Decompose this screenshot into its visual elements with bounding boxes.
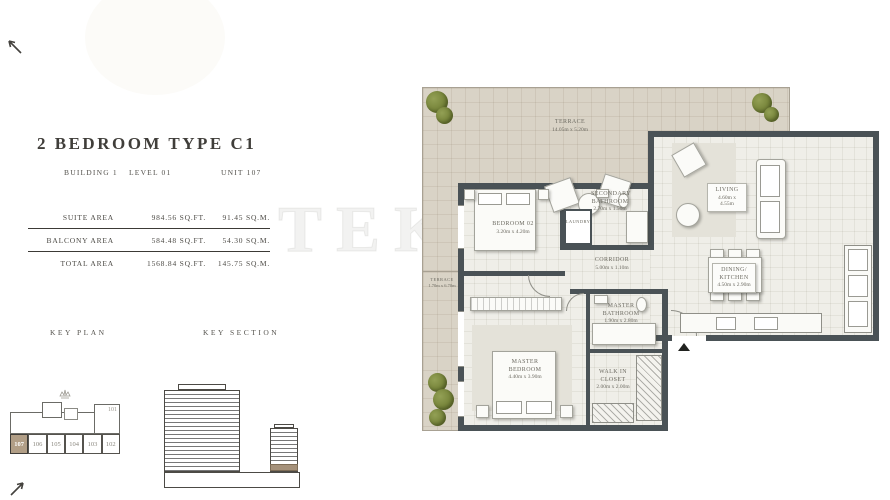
wardrobe-icon [592,403,634,423]
room-label-living: LIVING 4.60m x 4.55m [707,183,747,212]
key-plan-core [42,402,62,418]
tree-icon [436,107,453,124]
plan-background-patch [792,85,884,129]
balcony-area-sqm: 54.30 SQ.M. [206,236,270,245]
pillow-icon [478,193,502,205]
room-dims: 4.50m x 2.90m [717,282,751,289]
wall [648,131,654,189]
room-name: SECONDARY BATHROOM [591,191,629,206]
unit-101-label: 101 [108,407,117,413]
room-dims: 14.05m x 5.20m [552,127,588,134]
oven-icon [848,275,868,297]
wall [560,245,654,250]
room-name: WALK IN CLOSET [595,369,631,384]
kitchen-counter [680,313,822,333]
room-dims: 2.00m x 2.00m [595,384,631,391]
hob-icon [716,317,736,330]
room-dims: 4.60m x 4.55m [712,195,742,209]
balcony-area-label: BALCONY AREA [28,236,114,245]
room-name: MASTER BEDROOM [504,359,546,374]
wall [586,291,590,425]
tree-icon [429,409,446,426]
room-name: BEDROOM 02 [489,221,537,229]
key-plan-unit-106: 106 [28,434,46,454]
side-table-icon [676,203,700,227]
dresser-icon [470,297,562,311]
wall [458,425,668,431]
key-plan-core-2 [64,408,78,420]
total-area-sqm: 145.75 SQ.M. [206,259,270,268]
logo-ghost [85,0,225,95]
kitchen-sink-icon [754,317,778,330]
sofa-cushion [760,165,780,197]
entry-arrow-icon [678,343,690,351]
pillow-icon [526,401,552,414]
room-label-master-bedroom: MASTER BEDROOM 4.40m x 3.90m [504,359,546,381]
laundry-closet [564,209,592,245]
room-label-dining-kitchen: DINING/ KITCHEN 4.50m x 2.90m [712,263,756,293]
wall [648,131,879,137]
podium-base [164,472,300,488]
level-highlight-band [270,464,298,471]
suite-area-label: SUITE AREA [28,213,114,222]
wardrobe-icon [636,355,662,421]
north-arrow-icon [6,38,24,56]
window [458,205,464,249]
room-dims: 2.70m x 1.50m [591,206,629,213]
wall [586,349,662,353]
total-area-label: TOTAL AREA [28,259,114,268]
room-dims: 5.00m x 1.10m [587,265,637,272]
room-name: TERRACE [552,119,588,127]
room-dims: 4.40m x 3.90m [504,374,546,381]
room-name: LAUNDRY [565,219,591,225]
nightstand-icon [476,405,489,418]
window [458,311,464,367]
balcony-area-sqft: 584.48 SQ.FT. [114,236,206,245]
area-table: SUITE AREA 984.56 SQ.FT. 91.45 SQ.M. BAL… [28,206,270,275]
key-section-title: KEY SECTION [203,328,279,337]
tall-building-elevation [164,390,240,472]
wall [662,289,668,431]
room-label-terrace-main: TERRACE 14.05m x 5.20m [552,119,588,133]
tree-icon [764,107,779,122]
wall [648,183,654,249]
room-dims: 1.70m x 6.70m [425,283,459,289]
room-dims: 1.90m x 2.80m [601,318,641,325]
nightstand-icon [464,189,475,200]
room-label-corridor: CORRIDOR 5.00m x 1.10m [587,257,637,271]
floorplan-page: 2 BEDROOM TYPE C1 BUILDING 1 LEVEL 01 UN… [0,0,890,500]
cabinet-icon [848,301,868,327]
room-dims: 3.20m x 4.20m [489,229,537,236]
nightstand-icon [538,189,549,200]
wall [873,131,879,341]
nightstand-icon [560,405,573,418]
key-plan-title: KEY PLAN [50,328,107,337]
room-label-bedroom-02: BEDROOM 02 3.20m x 4.20m [489,221,537,235]
room-name: DINING/ KITCHEN [717,267,751,282]
developer-logo-icon [58,388,72,400]
key-plan-unit-102: 102 [102,434,120,454]
suite-area-sqft: 984.56 SQ.FT. [114,213,206,222]
bathtub-icon [626,211,648,243]
page-title: 2 BEDROOM TYPE C1 [37,134,256,154]
key-plan-unit-103: 103 [83,434,101,454]
key-plan-diagram: 101 107 106 105 104 103 102 [6,384,122,462]
suite-area-sqm: 91.45 SQ.M. [206,213,270,222]
room-name: LIVING [712,187,742,195]
fridge-icon [848,249,868,271]
room-label-walk-in-closet: WALK IN CLOSET 2.00m x 2.00m [595,369,631,391]
room-name: CORRIDOR [587,257,637,265]
building-label: BUILDING 1 [64,168,118,177]
floor-plan: TERRACE 14.05m x 5.20m TERRACE 1.70m x 6… [420,85,884,437]
table-row-suite: SUITE AREA 984.56 SQ.FT. 91.45 SQ.M. [28,206,270,229]
wall [706,335,879,341]
window [458,381,464,417]
room-name: MASTER BATHROOM [601,303,641,318]
sofa-cushion [760,201,780,233]
bathtub-icon [592,323,656,345]
keyplan-north-arrow-icon [8,480,26,498]
key-plan-unit-105: 105 [47,434,65,454]
pillow-icon [506,193,530,205]
pillow-icon [496,401,522,414]
key-section-diagram [162,382,302,490]
room-label-terrace-side: TERRACE 1.70m x 6.70m [425,277,459,288]
table-row-balcony: BALCONY AREA 584.48 SQ.FT. 54.30 SQ.M. [28,229,270,252]
key-plan-unit-101: 101 [94,404,120,434]
level-label: LEVEL 01 [129,168,171,177]
key-plan-unit-row: 107 106 105 104 103 102 [10,434,120,454]
total-area-sqft: 1568.84 SQ.FT. [114,259,206,268]
key-plan-unit-107: 107 [10,434,28,454]
unit-label: UNIT 107 [221,168,262,177]
key-plan-unit-104: 104 [65,434,83,454]
table-row-total: TOTAL AREA 1568.84 SQ.FT. 145.75 SQ.M. [28,252,270,275]
room-label-master-bathroom: MASTER BATHROOM 1.90m x 2.80m [601,303,641,325]
room-label-laundry: LAUNDRY [565,219,591,225]
room-label-secondary-bathroom: SECONDARY BATHROOM 2.70m x 1.50m [591,191,629,213]
tree-icon [433,389,454,410]
